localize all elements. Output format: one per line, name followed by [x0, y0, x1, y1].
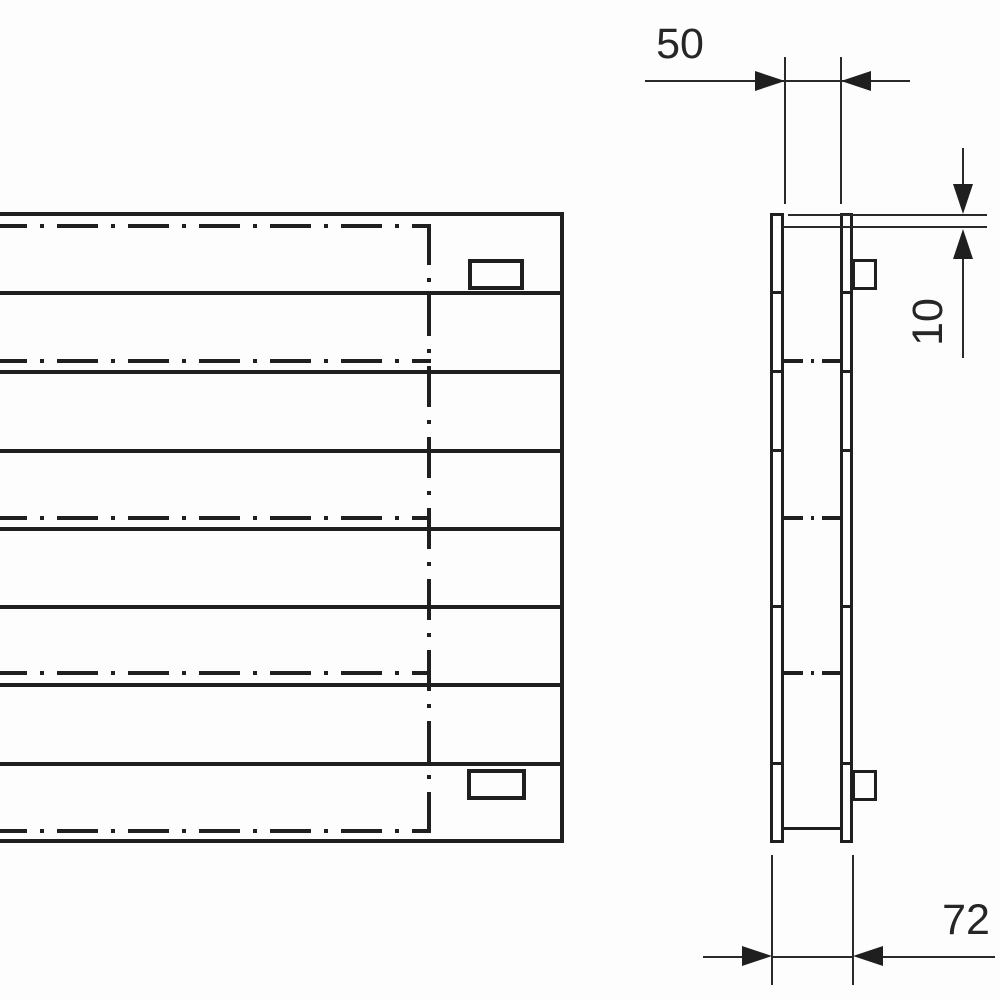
- side-profile-rear-bar: [770, 213, 784, 843]
- arrowhead-left-icon: [853, 946, 883, 966]
- mounting-bracket-top: [468, 259, 524, 290]
- drawing-canvas: 50 10 72: [0, 0, 1000, 1000]
- center-line: [0, 516, 431, 520]
- side-center-line: [783, 359, 840, 363]
- mounting-bracket-bottom: [467, 769, 526, 800]
- panel-line: [0, 449, 562, 453]
- side-top-extension-line: [788, 214, 987, 216]
- dimension-line: [883, 956, 995, 958]
- panel-line: [0, 527, 562, 531]
- center-line: [0, 224, 431, 228]
- side-inner-bottom-line: [783, 827, 840, 830]
- bar-segment-line: [770, 370, 784, 373]
- dimension-10-label: 10: [906, 298, 950, 346]
- dimension-line: [703, 956, 743, 958]
- bar-segment-line: [770, 449, 784, 452]
- bar-segment-line: [840, 762, 853, 765]
- side-center-line: [783, 671, 840, 675]
- side-bracket-top: [852, 259, 877, 290]
- bar-segment-line: [840, 291, 853, 294]
- panel-line: [0, 683, 562, 687]
- dimension-line: [962, 148, 964, 184]
- dimension-line: [962, 259, 964, 358]
- panel-line: [0, 291, 562, 295]
- panel-line: [0, 762, 562, 766]
- panel-line: [0, 370, 562, 374]
- center-line: [0, 671, 431, 675]
- arrowhead-down-icon: [953, 184, 973, 214]
- panel-line: [0, 605, 562, 609]
- arrowhead-up-icon: [953, 229, 973, 259]
- arrowhead-left-icon: [841, 71, 871, 91]
- side-bracket-bottom: [852, 770, 877, 801]
- side-inner-top-line: [783, 226, 987, 228]
- dimension-50-label: 50: [645, 22, 715, 66]
- side-center-line: [783, 516, 840, 520]
- dimension-72-label: 72: [936, 898, 996, 942]
- bar-segment-line: [840, 370, 853, 373]
- center-line-vertical: [427, 224, 431, 833]
- dimension-line: [772, 956, 853, 958]
- arrowhead-right-icon: [742, 946, 772, 966]
- front-top-edge: [0, 212, 564, 216]
- front-bottom-edge: [0, 839, 564, 843]
- arrowhead-right-icon: [755, 71, 785, 91]
- side-profile-front-bar: [840, 213, 853, 843]
- bar-segment-line: [770, 762, 784, 765]
- center-line: [0, 359, 431, 363]
- bar-segment-line: [840, 605, 853, 608]
- bar-segment-line: [840, 449, 853, 452]
- bar-segment-line: [770, 291, 784, 294]
- center-line: [0, 829, 431, 833]
- bar-segment-line: [770, 605, 784, 608]
